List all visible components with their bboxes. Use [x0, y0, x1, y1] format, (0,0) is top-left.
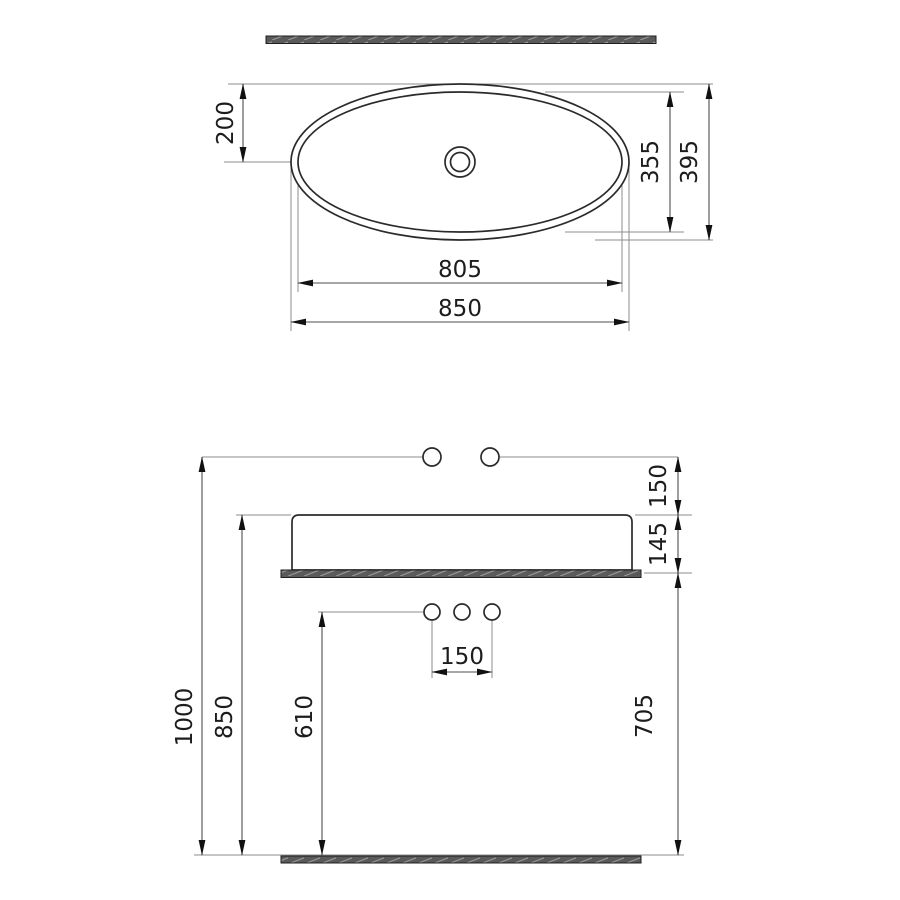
- wall-hole-right: [481, 448, 499, 466]
- wall-hole-left: [423, 448, 441, 466]
- basin-side-profile: [292, 515, 632, 570]
- dim-label-supply-spacing: 150: [440, 644, 484, 670]
- dim-label-supply-height: 610: [292, 695, 318, 739]
- dim-label-outer-length: 850: [438, 296, 482, 322]
- floor-slab: [281, 856, 641, 863]
- dim-label-total-height: 1000: [172, 688, 198, 747]
- top-view: 200 355 395 805 850: [213, 36, 713, 331]
- supply-hole-center: [454, 604, 470, 620]
- drawing-canvas: 200 355 395 805 850 150: [0, 0, 900, 900]
- countertop-slab-front-view: [281, 570, 641, 578]
- dim-label-counter-clearance: 705: [632, 694, 658, 738]
- dim-label-outer-depth: 395: [677, 140, 703, 184]
- supply-hole-right: [484, 604, 500, 620]
- dim-label-inner-depth: 355: [638, 140, 664, 184]
- dim-label-rim-height: 850: [212, 695, 238, 739]
- dim-label-inner-length: 805: [438, 257, 482, 283]
- technical-drawing-page: 200 355 395 805 850 150: [0, 0, 900, 900]
- basin-outer-rim: [291, 84, 629, 240]
- countertop-edge-top-view: [266, 36, 656, 44]
- front-view: 150 145 705 1000 850 610 150: [172, 448, 692, 863]
- dim-label-basin-height: 145: [646, 522, 672, 566]
- supply-hole-left: [424, 604, 440, 620]
- dim-label-wall-to-rim: 150: [646, 464, 672, 508]
- dim-label-drain-to-edge: 200: [213, 101, 239, 145]
